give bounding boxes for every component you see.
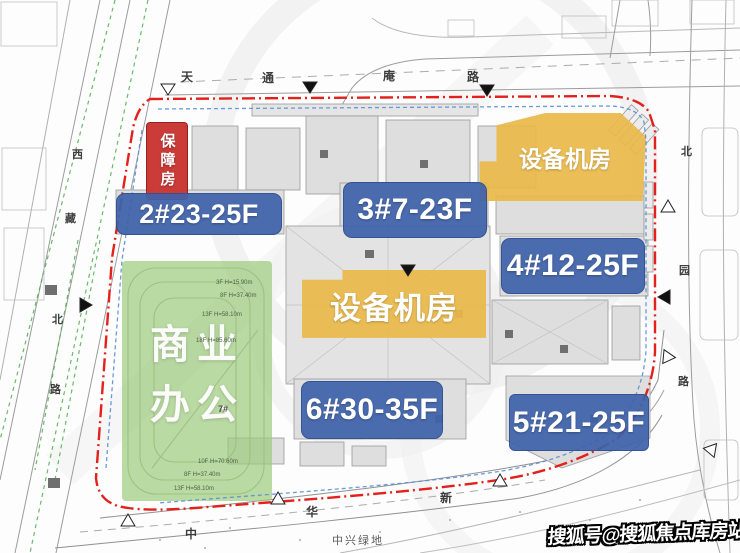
street-right-char: 路 (678, 373, 689, 389)
affordable-housing-text: 保障房 (157, 133, 178, 190)
entrance-marker-filled (401, 265, 415, 276)
street-left-char: 路 (50, 381, 61, 397)
street-right-char: 园 (679, 262, 690, 278)
street-top-char: 路 (467, 68, 479, 85)
entrance-marker-filled (658, 290, 670, 304)
entrance-marker-hollow (703, 439, 721, 457)
street-left-char: 藏 (65, 210, 76, 226)
label-building-6: 6#30-35F (301, 381, 443, 439)
entrance-marker-hollow (121, 514, 135, 526)
street-bottom-char: 华 (306, 503, 318, 520)
label-building-5: 5#21-25F (509, 394, 649, 451)
label-building-2: 2#23-25F (116, 193, 282, 235)
street-top-char: 天 (181, 68, 193, 85)
street-bottom-char: 新 (440, 489, 452, 506)
entrance-marker-filled (80, 298, 92, 312)
entrance-marker-filled (303, 82, 317, 93)
zone-affordable-housing: 保障房 (146, 122, 188, 200)
site-plan-canvas: 商业 办公 设备机房 设备机房 3F H=15.90m 8F H=37.40m … (0, 0, 740, 553)
label-building-3: 3#7-23F (343, 182, 487, 238)
entrance-marker-filled (480, 85, 494, 96)
entrance-marker-hollow (658, 347, 676, 364)
entrance-marker-hollow (161, 84, 175, 95)
street-bottom-char: 中 (185, 525, 197, 542)
street-right-char: 北 (681, 143, 692, 159)
street-top-char: 庵 (383, 67, 395, 84)
green-space-label: 中兴绿地 (332, 532, 384, 548)
street-left-char: 西 (72, 146, 83, 162)
street-left-char: 北 (52, 311, 63, 327)
label-building-4: 4#12-25F (501, 238, 645, 294)
entrance-marker-hollow (661, 200, 675, 212)
street-top-char: 通 (262, 69, 274, 86)
